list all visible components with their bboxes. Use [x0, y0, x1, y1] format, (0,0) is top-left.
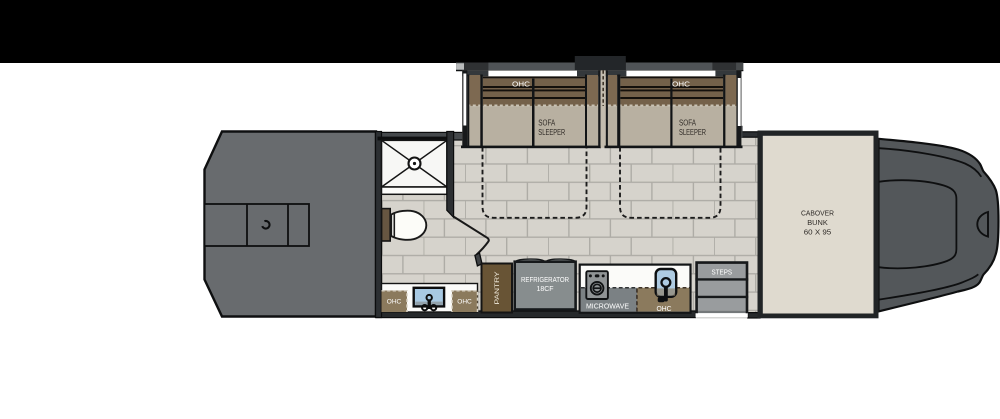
svg-text:OHC: OHC: [672, 79, 690, 88]
svg-text:OHC: OHC: [512, 79, 530, 88]
svg-text:MICROWAVE: MICROWAVE: [586, 302, 629, 311]
svg-text:PANTRY: PANTRY: [494, 272, 501, 305]
svg-text:SOFA: SOFA: [538, 118, 556, 127]
svg-text:60 X 95: 60 X 95: [804, 228, 832, 237]
svg-text:OHC: OHC: [457, 299, 472, 306]
svg-text:OHC: OHC: [387, 299, 402, 306]
svg-text:BUNK: BUNK: [807, 218, 828, 227]
svg-text:OHC: OHC: [657, 304, 673, 313]
svg-text:SLEEPER: SLEEPER: [538, 128, 565, 137]
svg-text:STEPS: STEPS: [712, 270, 733, 277]
svg-text:REFRIGERATOR: REFRIGERATOR: [521, 277, 569, 284]
svg-text:SLEEPER: SLEEPER: [679, 128, 706, 137]
svg-text:18CF: 18CF: [537, 286, 554, 293]
svg-text:SOFA: SOFA: [679, 118, 697, 127]
svg-text:CABOVER: CABOVER: [801, 208, 834, 217]
